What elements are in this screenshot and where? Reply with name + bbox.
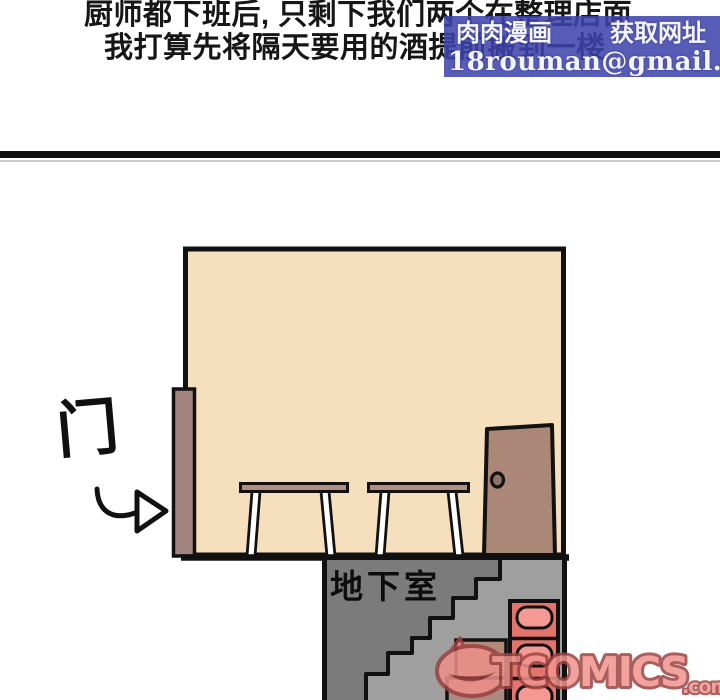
wine-slot-1 bbox=[517, 607, 552, 628]
door-label: 门 bbox=[52, 375, 122, 470]
comic-page: 厨师都下班后, 只剩下我们两个在整理店面 我打算先将隔天要用的酒提前搬到一楼 bbox=[0, 0, 720, 700]
site-watermark-title-row: 肉肉漫画 获取网址 bbox=[444, 16, 720, 48]
site-watermark-tagline: 获取网址 bbox=[610, 19, 706, 48]
open-door-slab bbox=[174, 389, 195, 556]
site-watermark-email: 18rouman@gmail.com bbox=[444, 48, 720, 77]
tcomics-watermark: TCOMICS .com bbox=[430, 636, 720, 700]
back-door bbox=[484, 425, 555, 555]
tcomics-brand-text: TCOMICS bbox=[492, 648, 687, 696]
door-knob bbox=[492, 473, 504, 487]
site-watermark-name: 肉肉漫画 bbox=[456, 19, 552, 48]
tcomics-tld-text: .com bbox=[682, 676, 720, 698]
door-arrow-head-icon bbox=[137, 492, 166, 531]
site-watermark-banner: 肉肉漫画 获取网址 18rouman@gmail.com bbox=[444, 16, 720, 77]
basement-label: 地下室 bbox=[330, 560, 441, 608]
tcomics-watermark-graphic: TCOMICS .com bbox=[430, 636, 720, 700]
table-1-top bbox=[241, 484, 348, 492]
door-arrow-curve bbox=[97, 489, 135, 516]
table-2-top bbox=[369, 484, 469, 492]
